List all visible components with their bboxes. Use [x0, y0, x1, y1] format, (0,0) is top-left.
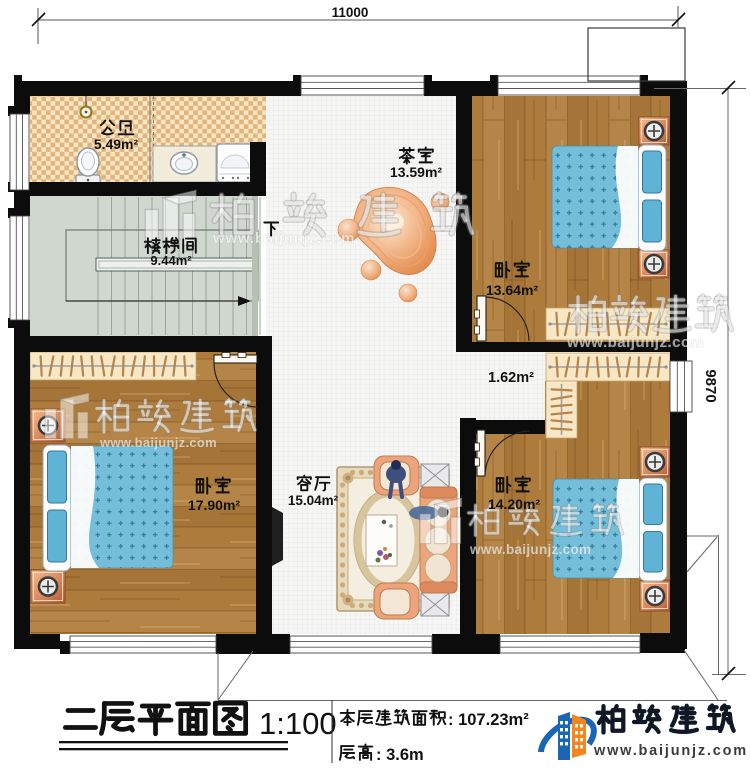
- svg-text:www.baijunjz.com: www.baijunjz.com: [212, 230, 355, 247]
- svg-text:1:100: 1:100: [259, 706, 337, 741]
- svg-text:www.baijunjz.com: www.baijunjz.com: [566, 334, 704, 351]
- svg-text:5.49m²: 5.49m²: [94, 136, 139, 152]
- svg-text:11000: 11000: [332, 5, 369, 20]
- svg-text:www.baijunjz.com: www.baijunjz.com: [99, 435, 217, 450]
- svg-text:9870: 9870: [702, 369, 719, 402]
- svg-text:9.44m²: 9.44m²: [150, 253, 192, 268]
- svg-text:14.20m²: 14.20m²: [488, 496, 540, 512]
- svg-text:1.62m²: 1.62m²: [488, 370, 534, 386]
- svg-text:: 107.23m²: : 107.23m²: [448, 711, 529, 729]
- svg-text:: 3.6m: : 3.6m: [376, 746, 424, 764]
- svg-text:13.64m²: 13.64m²: [486, 282, 538, 298]
- svg-text:www.baijunjz.com: www.baijunjz.com: [469, 542, 591, 557]
- svg-text:17.90m²: 17.90m²: [188, 497, 240, 513]
- svg-text:13.59m²: 13.59m²: [390, 164, 442, 180]
- svg-text:15.04m²: 15.04m²: [288, 493, 339, 508]
- svg-text:www.baijunjz.com: www.baijunjz.com: [593, 743, 748, 759]
